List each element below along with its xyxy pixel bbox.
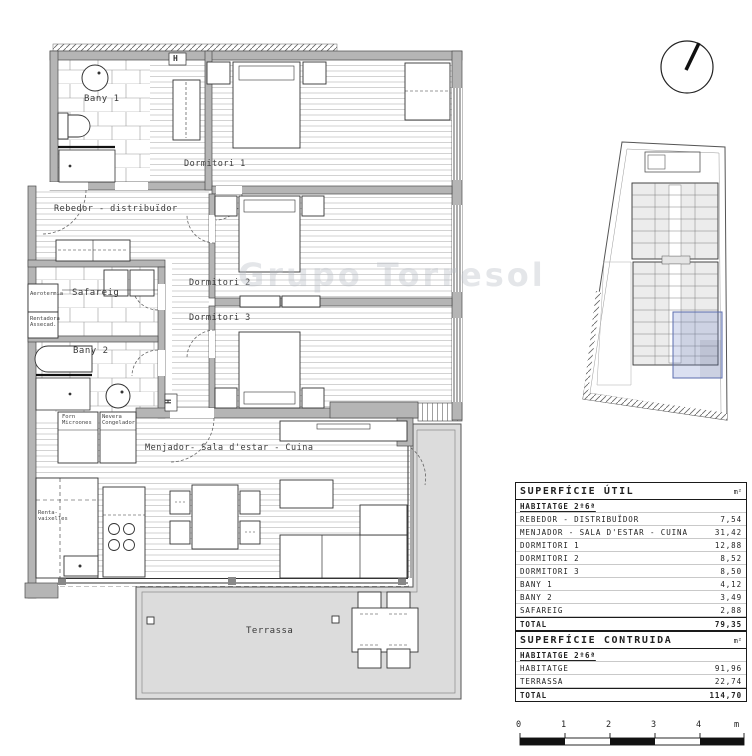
rebedor-closet [56,240,130,261]
table-total-label: TOTAL [520,620,547,629]
scale-tick-0: 0 [516,720,521,730]
table-row-label: TERRASSA [520,677,563,686]
table-total-row: TOTAL79,35 [516,617,746,632]
table-row: DORMITORI 28,52 [516,552,746,565]
room-label-terrassa: Terrassa [246,626,293,636]
table-row-value: 4,12 [720,580,742,589]
table-row-label: SAFAREIG [520,606,563,615]
unit-highlight [673,312,722,378]
room-label-dormitori3: Dormitori 3 [189,313,251,323]
table-row-value: 12,88 [715,541,742,550]
room-label-rebedor: Rebedor - distribuïdor [54,204,178,214]
table-row: DORMITORI 112,88 [516,539,746,552]
table-total-row: TOTAL114,70 [516,688,746,701]
room-label-dormitori1: Dormitori 1 [184,159,246,169]
column-marker-top: H [173,54,178,63]
table-row-value: 3,49 [720,593,742,602]
table-row-value: 31,42 [715,528,742,537]
room-label-bany2: Bany 2 [73,346,109,356]
table-row-value: 7,54 [720,515,742,524]
table-section-header: SUPERFÍCIE ÚTILm² [516,483,746,500]
scale-tick-4: 4 [696,720,701,730]
table-group-label: HABITATGE 2º6ª [520,651,596,660]
table-unit: m² [734,637,742,645]
table-row-label: HABITATGE [520,664,569,673]
column-marker-side: H [164,399,173,404]
appliance-label-nevera: Nevera Congelador [102,414,136,426]
table-row-value: 22,74 [715,677,742,686]
table-row-label: DORMITORI 3 [520,567,580,576]
table-row: REBEDOR - DISTRIBUÏDOR7,54 [516,513,746,526]
appliance-label-rentavaixelles: Renta- vaixelles [38,510,60,522]
table-total-value: 114,70 [710,691,743,700]
scale-unit: m [734,720,739,730]
table-row-label: BANY 2 [520,593,553,602]
table-row: TERRASSA22,74 [516,675,746,688]
table-row-label: REBEDOR - DISTRIBUÏDOR [520,515,639,524]
table-row: BANY 14,12 [516,578,746,591]
scale-tick-2: 2 [606,720,611,730]
table-section-title: SUPERFÍCIE ÚTIL [520,486,634,497]
table-row-value: 91,96 [715,664,742,673]
table-row-label: MENJADOR - SALA D'ESTAR - CUINA [520,528,688,537]
room-label-safareig: Safareig [72,288,119,298]
watermark: Grupo Torresol [238,256,546,294]
appliance-label-forn: Forn Microones [62,414,96,426]
table-group-label: HABITATGE 2º6ª [520,502,596,511]
architectural-drawing: Bany 1 H H Dormitori 1 Rebedor - distrib… [0,0,752,756]
table-group-row: HABITATGE 2º6ª [516,649,746,662]
table-row: HABITATGE91,96 [516,662,746,675]
table-row-label: DORMITORI 1 [520,541,580,550]
appliance-label-rentadora: Rentadora Assecad. [30,316,57,328]
area-table: SUPERFÍCIE ÚTILm²HABITATGE 2º6ªREBEDOR -… [515,482,747,702]
party-wall-hatch [53,44,337,51]
table-row-value: 2,88 [720,606,742,615]
floorplan [25,44,462,699]
table-unit: m² [734,488,742,496]
table-section-header: SUPERFÍCIE CONTRUIDAm² [516,632,746,649]
appliance-label-aerotermia: Aerotermia [30,291,57,297]
table-total-value: 79,35 [715,620,742,629]
table-group-row: HABITATGE 2º6ª [516,500,746,513]
scale-bar [520,733,744,745]
table-row-label: BANY 1 [520,580,553,589]
scale-tick-3: 3 [651,720,656,730]
room-label-bany1: Bany 1 [84,94,120,104]
table-row: MENJADOR - SALA D'ESTAR - CUINA31,42 [516,526,746,539]
room-label-menjador: Menjador- Sala d'estar - Cuina [145,443,314,453]
scale-tick-1: 1 [561,720,566,730]
table-row-value: 8,50 [720,567,742,576]
table-total-label: TOTAL [520,691,547,700]
table-row: SAFAREIG2,88 [516,604,746,617]
site-plan [583,142,727,420]
table-row-value: 8,52 [720,554,742,563]
table-row-label: DORMITORI 2 [520,554,580,563]
table-row: DORMITORI 38,50 [516,565,746,578]
table-section-title: SUPERFÍCIE CONTRUIDA [520,635,672,646]
corridor-floor [172,190,209,408]
north-indicator [661,41,713,93]
table-row: BANY 23,49 [516,591,746,604]
